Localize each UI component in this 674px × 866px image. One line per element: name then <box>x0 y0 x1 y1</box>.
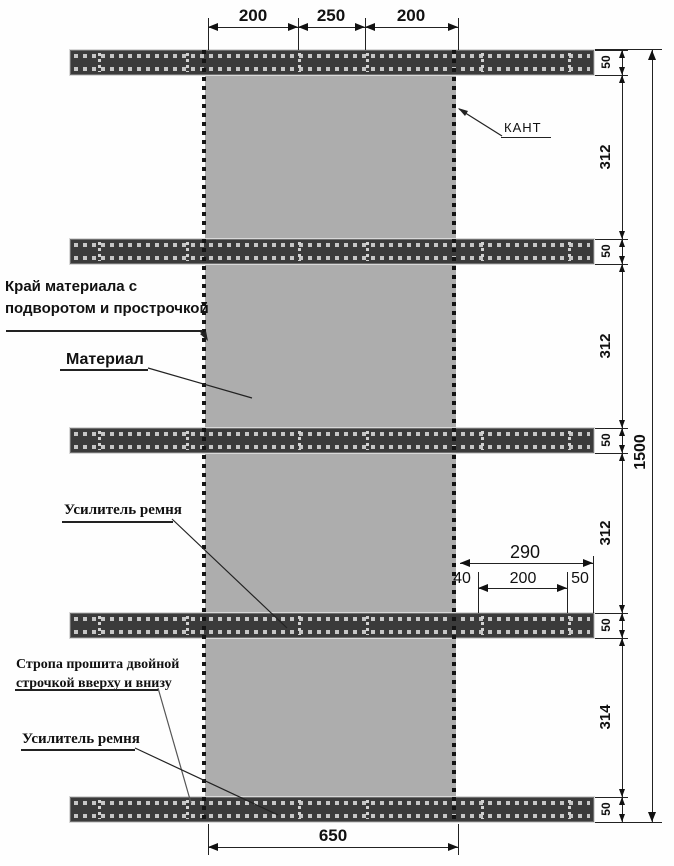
dim-arrow <box>619 613 625 621</box>
dim-arrow <box>619 231 625 239</box>
dim-arrow <box>619 453 625 461</box>
strap-sewn-label: Стропа прошита двойной строчкой вверху и… <box>16 655 186 693</box>
dim-arrow <box>460 559 470 567</box>
dim-label-right-chain-1: 312 <box>599 134 613 180</box>
dim-arrow <box>448 843 458 851</box>
dim-arrow <box>208 23 218 31</box>
strap-sewn-line1: Стропа прошита двойной <box>16 655 186 674</box>
dim-arrow <box>619 797 625 805</box>
dim-label-bottom: 650 <box>303 826 363 846</box>
dim-arrow <box>619 256 625 264</box>
edge-of-material-label: Край материала с подворотом и прострочко… <box>5 276 217 320</box>
dim-label-top-2: 250 <box>301 6 361 26</box>
dim-arrow <box>208 843 218 851</box>
underline <box>21 749 135 751</box>
belt-reinforcement-label-2: Усилитель ремня <box>22 731 140 748</box>
dim-arrow <box>583 559 593 567</box>
dim-label-290: 290 <box>495 542 555 563</box>
dim-arrow <box>619 75 625 83</box>
dim-label-right-chain-8: 50 <box>599 786 613 832</box>
dim-arrow <box>619 264 625 272</box>
dim-label-right-chain-0: 50 <box>599 39 613 85</box>
dim-arrow <box>365 23 375 31</box>
dim-arrow <box>619 605 625 613</box>
dim-arrow <box>648 812 656 822</box>
dim-arrow <box>619 814 625 822</box>
dim-label-right-chain-7: 314 <box>599 694 613 740</box>
dim-arrow <box>619 50 625 58</box>
dim-arrow <box>619 630 625 638</box>
dim-label-1500: 1500 <box>633 417 649 487</box>
dim-arrow <box>448 23 458 31</box>
dim-arrow <box>478 584 488 592</box>
dim-label-top-3: 200 <box>381 6 441 26</box>
dim-label-50mid: 50 <box>566 570 594 588</box>
edge-of-material-line2: подворотом и прострочкой <box>5 298 217 320</box>
technical-drawing: 200 250 200 650 290 40 200 50 1500 КАНТ … <box>0 0 674 866</box>
dim-label-right-chain-6: 50 <box>599 602 613 648</box>
material-label: Материал <box>66 351 144 369</box>
dim-label-right-chain-2: 50 <box>599 228 613 274</box>
underline <box>6 330 203 332</box>
underline <box>60 369 148 371</box>
dim-arrow <box>288 23 298 31</box>
dim-arrow <box>619 428 625 436</box>
dim-arrow <box>648 50 656 60</box>
dim-arrow <box>619 67 625 75</box>
kant-label: КАНТ <box>504 120 542 135</box>
dim-arrow <box>619 420 625 428</box>
dim-label-right-chain-5: 312 <box>599 510 613 556</box>
dim-arrow <box>619 789 625 797</box>
dim-arrow <box>619 445 625 453</box>
belt-reinforcement-label-1: Усилитель ремня <box>64 502 182 519</box>
dim-label-right-chain-3: 312 <box>599 323 613 369</box>
underline <box>15 689 158 691</box>
edge-of-material-line1: Край материала с <box>5 276 217 298</box>
dim-arrow <box>619 638 625 646</box>
dim-arrow <box>619 239 625 247</box>
dim-label-right-chain-4: 50 <box>599 417 613 463</box>
dim-label-200mid: 200 <box>499 570 547 588</box>
underline <box>62 521 173 523</box>
dim-label-top-1: 200 <box>223 6 283 26</box>
dim-label-40: 40 <box>448 570 476 588</box>
